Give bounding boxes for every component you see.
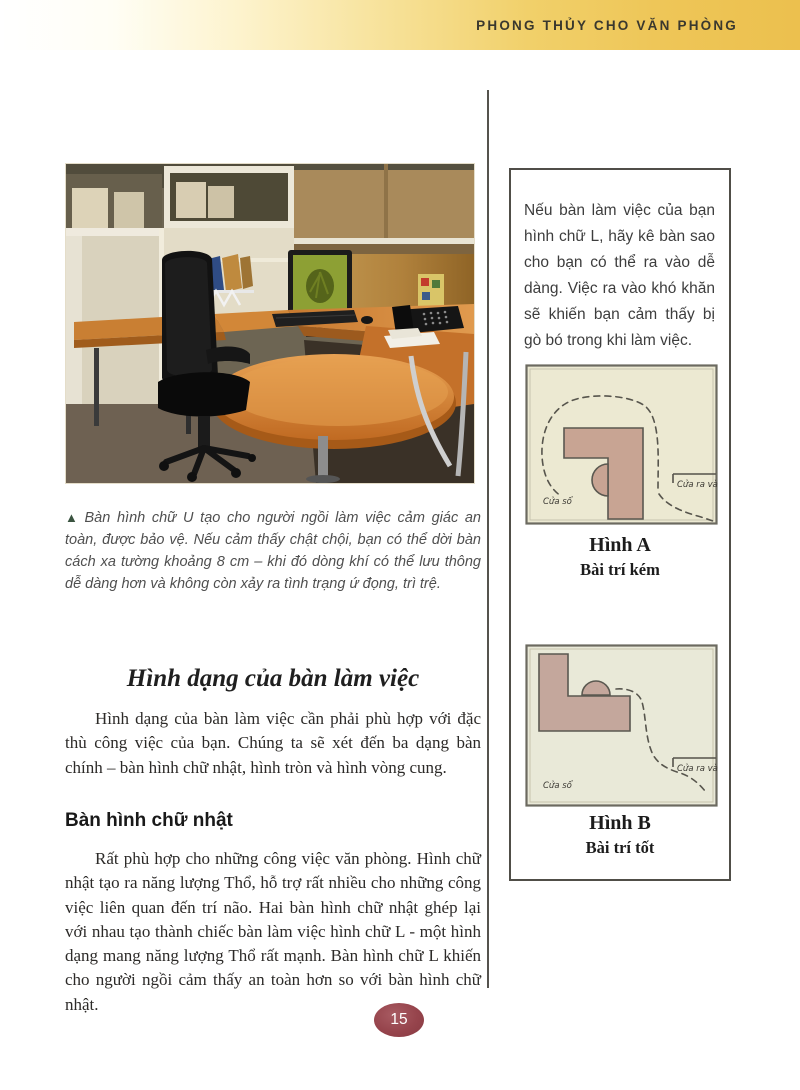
diagram-a-caption: Hình A Bài trí kém [511, 534, 729, 580]
shelf-box [208, 186, 234, 218]
shelf-box [72, 188, 108, 228]
cabinet-trim [294, 238, 474, 244]
window-label-a: Cửa sổ [543, 496, 574, 507]
triangle-up-marker: ▲ [65, 510, 85, 525]
postit-note [421, 278, 429, 286]
sub-heading: Bàn hình chữ nhật [65, 810, 481, 832]
mouse [361, 316, 373, 324]
book-page: { "header": { "title": "PHONG THỦY CHO V… [0, 0, 800, 1090]
cabinet-seam [384, 164, 388, 242]
page-number-badge: 15 [374, 1003, 424, 1037]
diagram-b: Cửa ra vào Cửa sổ [525, 644, 718, 807]
header-band: PHONG THỦY CHO VĂN PHÒNG [0, 0, 800, 50]
column-divider [487, 90, 489, 988]
postit-note [422, 292, 430, 300]
chair-seat [158, 372, 250, 416]
page-number: 15 [390, 1011, 407, 1029]
photo-caption: ▲Bàn hình chữ U tạo cho người ngồi làm v… [65, 507, 481, 595]
diagram-a-subtitle: Bài trí kém [511, 560, 729, 580]
section-heading: Hình dạng của bàn làm việc [65, 665, 481, 693]
office-photo-scene [66, 164, 474, 483]
peninsula-leg [318, 436, 328, 480]
chair-stem [198, 416, 210, 448]
body-paragraph-2: Rất phù hợp cho những công việc văn phòn… [65, 847, 481, 1017]
door-label-a: Cửa ra vào [677, 479, 718, 490]
postit-note [432, 280, 440, 288]
body-paragraph-1: Hình dạng của bàn làm việc cần phải phù … [65, 707, 481, 780]
diagram-a: Cửa ra vào Cửa sổ [525, 364, 718, 525]
sidebar-box: Nếu bàn làm việc của bạn hình chữ L, hãy… [509, 168, 731, 881]
sidebar-note: Nếu bàn làm việc của bạn hình chữ L, hãy… [524, 198, 715, 354]
office-photo [65, 163, 475, 484]
shelf-box [114, 192, 144, 228]
shelf-box [176, 182, 206, 218]
chair-back-cushion [165, 257, 212, 377]
page-header-title: PHONG THỦY CHO VĂN PHÒNG [476, 18, 800, 33]
photo-caption-text: Bàn hình chữ U tạo cho người ngồi làm vi… [65, 510, 481, 592]
window-label-b: Cửa sổ [543, 780, 574, 791]
leg-foot [306, 475, 340, 483]
diagram-b-subtitle: Bài trí tốt [511, 838, 729, 858]
desk-leg-dark [94, 348, 99, 426]
white-beam [66, 228, 166, 236]
diagram-b-title: Hình B [511, 812, 729, 835]
door-label-b: Cửa ra vào [677, 763, 718, 774]
diagram-a-title: Hình A [511, 534, 729, 557]
diagram-b-caption: Hình B Bài trí tốt [511, 812, 729, 858]
